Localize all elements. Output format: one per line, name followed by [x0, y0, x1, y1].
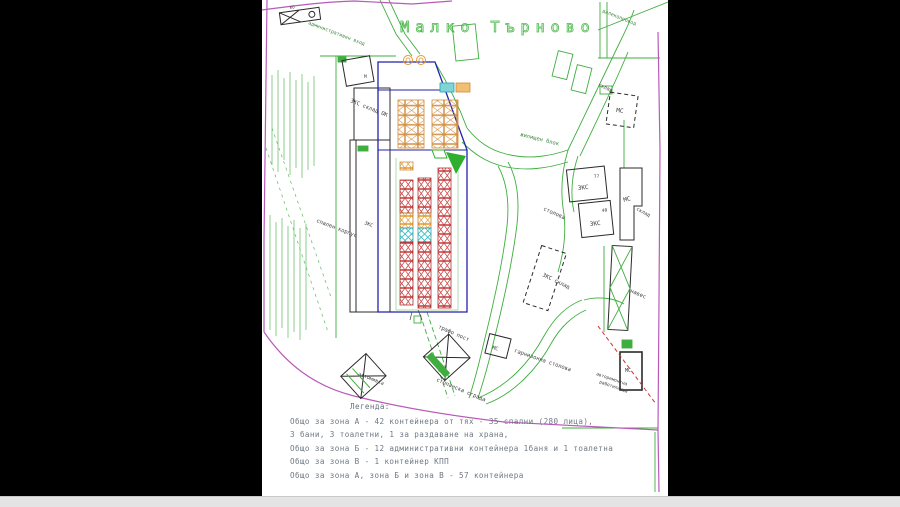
vegetation-layer: [266, 70, 332, 340]
map-title: Малко Търново: [400, 18, 595, 36]
legend-line: Общо за зона В - 1 контейнер КПП: [290, 455, 662, 469]
label-naves: навес: [629, 288, 647, 300]
label-ms-bottom2: МС: [625, 368, 631, 374]
label-avtomivka: автомивка: [357, 371, 384, 387]
label-garnizonna-stolova: гарнизонна столова: [513, 348, 571, 373]
labels-layer: административен вход далекопровод склад …: [289, 4, 651, 403]
label-sklad-right: склад: [635, 206, 651, 218]
label-zks1: ЗКС: [577, 184, 589, 192]
label-zks-sklad-ok: ЗКС склад ОК: [349, 98, 389, 119]
legend-line: Общо за зона Б - 12 административни конт…: [290, 442, 662, 456]
right-letterbox: [668, 0, 900, 506]
label-zks-sklad: ЗКС склад: [541, 272, 571, 291]
legend-line: Общо за зона А - 42 контейнера от тях - …: [290, 415, 662, 429]
label-admin-entrance: административен вход: [307, 20, 365, 47]
label-ko-mark: КО: [289, 4, 295, 10]
label-ms-right: МС: [623, 195, 632, 204]
legend: Легенда: Общо за зона А - 42 контейнера …: [290, 400, 662, 483]
label-zks1-num: 77: [594, 173, 600, 180]
label-zks2: ЗКС: [589, 220, 601, 228]
legend-line: Общо за зона А, зона Б и зона В - 57 кон…: [290, 469, 662, 483]
label-m-mark: М: [364, 74, 367, 80]
label-zks2-num: 40: [602, 207, 608, 214]
legend-line: 3 бани, 3 тоалетни, 1 за раздаване на хр…: [290, 428, 662, 442]
left-letterbox: [0, 0, 262, 506]
legend-heading: Легенда:: [350, 400, 662, 414]
label-ms-bottom1: МС: [491, 345, 498, 352]
drawing-page: Малко Търново административен вход далек…: [262, 0, 668, 506]
bottom-edge-strip: [0, 496, 900, 507]
zone-a-layer: [378, 56, 470, 321]
label-zks-left: ЗКС: [363, 220, 374, 229]
label-stolova: столова: [542, 206, 566, 221]
label-zhilishten-blok: жилищен блок: [520, 131, 561, 148]
label-spalen-korpus: спален корпус: [315, 218, 357, 239]
label-ms-top: МС: [616, 107, 625, 115]
